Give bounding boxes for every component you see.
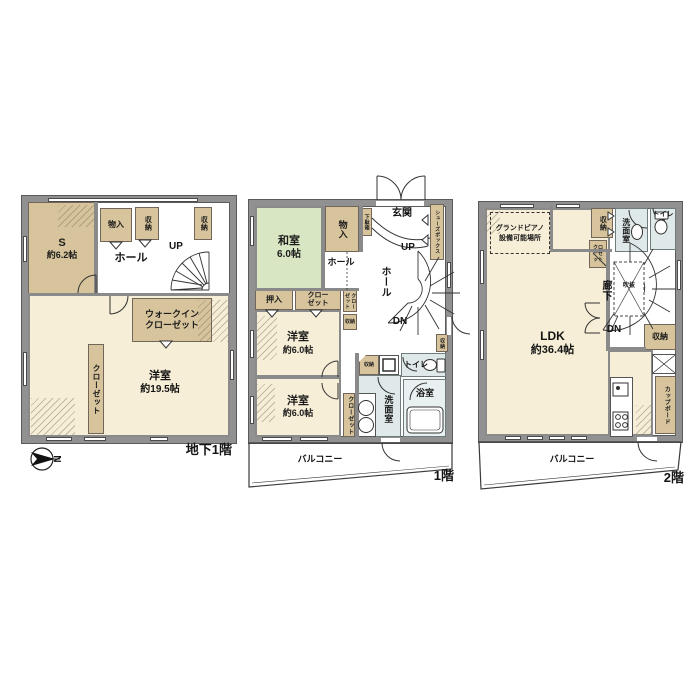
f1-storage-a: 収納	[343, 314, 357, 330]
compass-n-label: N	[49, 452, 63, 466]
f2-closet-small-label: クローゼット	[592, 245, 604, 263]
f2-ldk-size: 約36.4帖	[531, 344, 574, 357]
f1-shoes-box: シューズボックス	[430, 204, 444, 260]
b1-wic-line2: クローゼット	[145, 320, 199, 331]
b1-wall-western-top	[28, 293, 230, 296]
f2-cupboard-label: カップボード	[662, 386, 670, 425]
f2-window-bottom1	[505, 436, 521, 440]
f1-closet-b: クローゼット	[343, 290, 357, 312]
f1-western1-name: 洋室	[287, 331, 309, 345]
f1-closet-c: クローゼット	[343, 393, 355, 437]
f2-kitchen-island	[610, 377, 633, 437]
f2-closet-small: クローゼット	[589, 240, 607, 268]
f2-floor-label: 2階	[650, 470, 684, 486]
f1-western2-name: 洋室	[287, 395, 309, 409]
f2-ldk-label: LDK 約36.4帖	[505, 326, 600, 360]
f1-hall-left-label: ホール	[323, 256, 359, 269]
b1-window-left2	[23, 352, 27, 386]
b1-monoire-label: 物入	[108, 220, 124, 230]
f1-room-washitsu: 和室 6.0帖	[255, 206, 323, 290]
f2-window-bottom4	[571, 436, 587, 440]
f2-piano-line1: グランドピアノ	[496, 223, 544, 233]
b1-closet-label: クローゼット	[91, 364, 101, 415]
b1-window-bottom2	[84, 437, 106, 441]
b1-storage-a-label: 収納	[143, 216, 152, 231]
floorplan-canvas: 洋室 約19.5帖 S 約6.2帖 物入 収納 収納 ホール UP ウォークイン…	[0, 0, 700, 700]
f1-hatch-2	[257, 384, 275, 422]
f1-oshiire-label: 押入	[266, 295, 282, 305]
f2-window-top1	[500, 204, 534, 208]
f1-storage-b-label: 収納	[364, 362, 374, 368]
f2-wall-corridor-bottom	[606, 347, 646, 351]
f1-balcony-label: バルコニー	[288, 452, 352, 466]
f1-basin-box	[379, 355, 399, 375]
f1-storage-a-label: 収納	[345, 319, 355, 325]
f2-balcony-door-gap	[637, 437, 657, 441]
f1-wall-washitsu-right	[321, 206, 325, 290]
b1-storage-b: 収納	[194, 207, 212, 240]
b1-western-label: 洋室 約19.5帖	[105, 366, 215, 400]
b1-western-name: 洋室	[149, 370, 171, 383]
f1-side-door-gap	[447, 317, 451, 335]
b1-window-left1	[23, 236, 27, 262]
f2-ldk-name: LDK	[540, 329, 565, 343]
f1-window-left2	[250, 330, 254, 358]
f1-toilet-label: トイレ	[403, 359, 429, 371]
f1-floor-label: 1階	[420, 468, 454, 484]
f1-genkan-label: 玄関	[382, 206, 422, 222]
f1-window-left1	[250, 216, 254, 246]
f1-senmen-label: 洗面室	[381, 388, 395, 430]
f1-monoire-label: 物入	[336, 220, 347, 239]
b1-window-right	[230, 350, 234, 380]
f2-piano-line2: 設備可能場所	[499, 233, 541, 243]
f2-senmen-label: 洗面室	[619, 214, 633, 248]
b1-window-top	[48, 198, 198, 202]
f1-closet-a-label: クローゼット	[305, 292, 331, 308]
f1-window-bottom1	[262, 437, 292, 441]
f2-dumbwaiter-box	[652, 354, 676, 374]
f1-western1-size: 約6.0帖	[283, 345, 314, 356]
b1-storage-a: 収納	[135, 207, 159, 240]
b1-closet-strip: クローゼット	[88, 344, 104, 434]
f1-washitsu-size: 6.0帖	[277, 249, 301, 262]
b1-window-bottom3	[150, 437, 168, 441]
f2-window-top2	[556, 204, 580, 208]
b1-western-size: 約19.5帖	[140, 384, 179, 396]
f1-washitsu-name: 和室	[278, 235, 300, 249]
f2-wall-alcove-v	[550, 206, 553, 252]
f2-storage-right: 収納	[644, 324, 676, 350]
f1-hatch-1	[257, 316, 277, 360]
b1-stairs-up-label: UP	[164, 241, 188, 253]
f2-window-right1	[677, 260, 681, 290]
f2-storage-top-label: 収納	[598, 216, 607, 231]
f1-laundry-strip	[357, 393, 376, 437]
f2-hatch-2	[636, 405, 652, 435]
b1-wic-line1: ウォークイン	[145, 309, 199, 320]
f1-hall-center-label: ホール	[377, 258, 391, 306]
b1-storage-b-label: 収納	[199, 216, 208, 231]
f1-closet-a: クローゼット	[295, 290, 341, 310]
f2-balcony-label: バルコニー	[540, 452, 604, 466]
f1-wall-row	[255, 288, 359, 291]
f2-piano-area: グランドピアノ 設備可能場所	[490, 212, 550, 254]
f2-storage-right-label: 収納	[652, 332, 668, 342]
f2-window-left1	[480, 250, 484, 284]
f1-up-label: UP	[396, 242, 420, 254]
f1-window-left3	[250, 396, 254, 424]
f1-dn-label: DN	[388, 316, 412, 328]
f1-bath-label: 浴室	[410, 387, 440, 399]
f1-closet-b-label: クローゼット	[344, 291, 357, 311]
f2-toilet-label: トイレ	[651, 210, 675, 220]
f1-balcony-door-gap	[381, 438, 400, 442]
b1-s-size: 約6.2帖	[47, 250, 78, 261]
f1-western2-size: 約6.0帖	[283, 408, 314, 419]
f2-window-left2	[480, 330, 484, 360]
b1-hatch-1	[58, 205, 94, 227]
b1-s-name: S	[58, 237, 65, 251]
b1-wall-s-hall	[94, 202, 98, 296]
b1-window-bottom1	[46, 437, 72, 441]
f1-wall-col	[355, 353, 359, 437]
b1-hall-label: ホール	[96, 252, 166, 266]
f2-dn-label: DN	[602, 324, 626, 336]
f2-window-bottom3	[549, 436, 565, 440]
f1-oshiire: 押入	[255, 290, 293, 310]
f1-window-bottom2	[300, 437, 328, 441]
f1-storage-c-label: 収納	[439, 338, 445, 349]
f2-storage-top: 収納	[591, 208, 613, 238]
f2-fukinuke-label: 吹抜	[616, 282, 642, 292]
f1-shoesbox-label: シューズボックス	[434, 210, 440, 254]
f2-wall-alcove-h	[550, 249, 612, 252]
f2-window-bottom2	[527, 436, 543, 440]
f1-window-right	[447, 262, 451, 288]
b1-floor-label: 地下1階	[150, 442, 232, 458]
f2-cupboard: カップボード	[655, 376, 676, 434]
f2-rouka-label: 廊下	[598, 272, 612, 308]
b1-storage-monoire: 物入	[100, 208, 132, 242]
f1-closet-c-label: クローゼット	[345, 396, 353, 435]
f1-storage-monoire: 物入	[325, 206, 359, 252]
f1-storage-c: 収納	[436, 334, 448, 352]
b1-hatch-2	[198, 300, 228, 342]
b1-hatch-3	[31, 398, 75, 435]
f1-getabako-label: 下駄箱	[363, 214, 369, 231]
f1-wall-monoire-right	[359, 206, 363, 252]
